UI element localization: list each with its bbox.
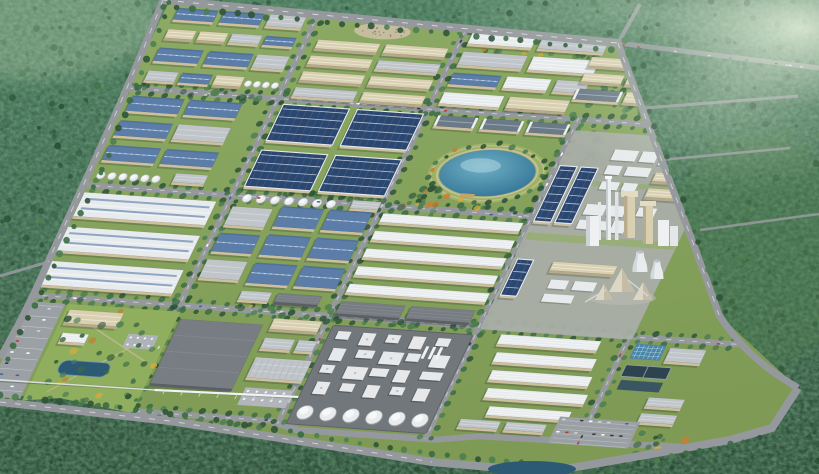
industrial-park-aerial-render: Aerial 3D master-plan rendering of an in… <box>0 0 819 474</box>
aerial-scene-canvas: Aerial 3D master-plan rendering of an in… <box>0 0 819 474</box>
